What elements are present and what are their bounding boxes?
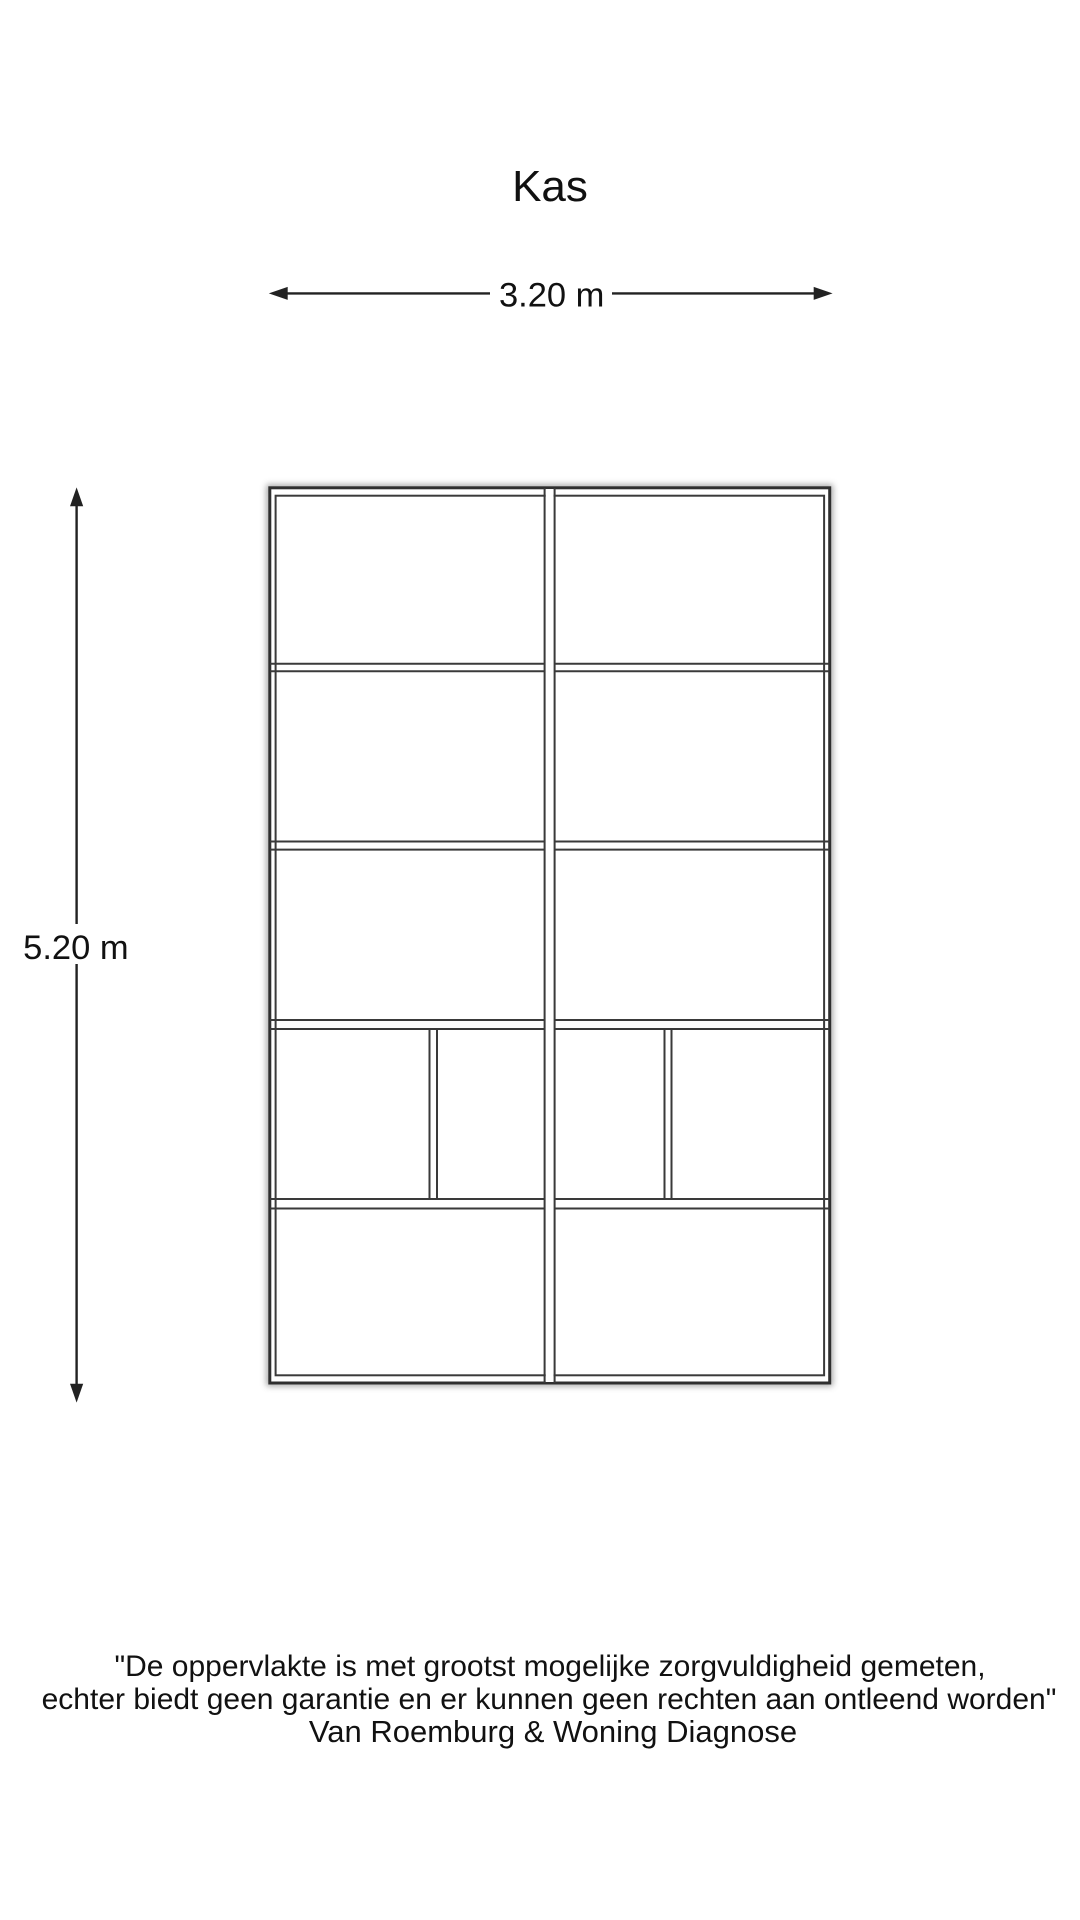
svg-text:echter biedt geen garantie en: echter biedt geen garantie en er kunnen …	[42, 1683, 1057, 1716]
svg-text:Van Roemburg & Woning Diagnose: Van Roemburg & Woning Diagnose	[309, 1714, 797, 1749]
svg-text:"De oppervlakte is met grootst: "De oppervlakte is met grootst mogelijke…	[114, 1650, 985, 1683]
svg-text:3.20 m: 3.20 m	[499, 277, 604, 315]
svg-text:Kas: Kas	[512, 162, 588, 211]
svg-text:5.20 m: 5.20 m	[23, 929, 128, 967]
